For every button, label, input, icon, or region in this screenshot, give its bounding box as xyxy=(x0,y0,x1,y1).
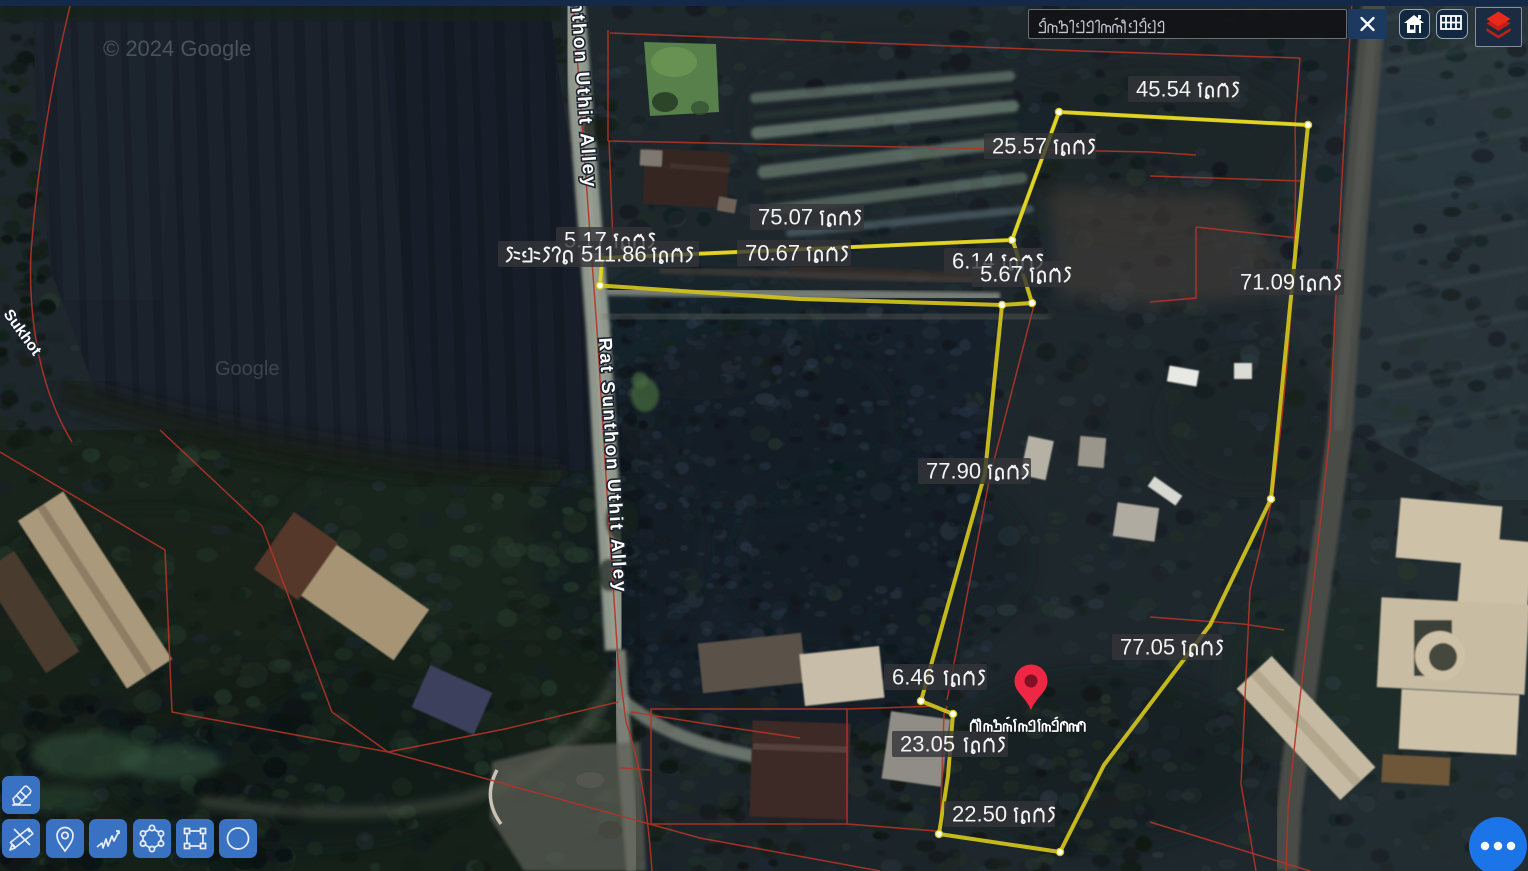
svg-text:25.57: 25.57 xyxy=(992,134,1047,159)
svg-text:70.67: 70.67 xyxy=(745,241,800,266)
svg-text:45.54: 45.54 xyxy=(1136,77,1191,102)
svg-text:6.46: 6.46 xyxy=(892,665,935,690)
svg-text:75.07: 75.07 xyxy=(758,205,813,230)
svg-text:5.67: 5.67 xyxy=(980,262,1023,287)
svg-text:77.90: 77.90 xyxy=(926,459,981,484)
svg-text:77.05: 77.05 xyxy=(1120,635,1175,660)
svg-text:23.05: 23.05 xyxy=(900,732,955,757)
svg-text:22.50: 22.50 xyxy=(952,802,1007,827)
svg-text:71.09: 71.09 xyxy=(1240,270,1295,295)
svg-text:511.86: 511.86 xyxy=(581,242,647,267)
svg-text:© 2024 Google: © 2024 Google xyxy=(103,36,251,61)
svg-text:Google: Google xyxy=(215,358,280,380)
